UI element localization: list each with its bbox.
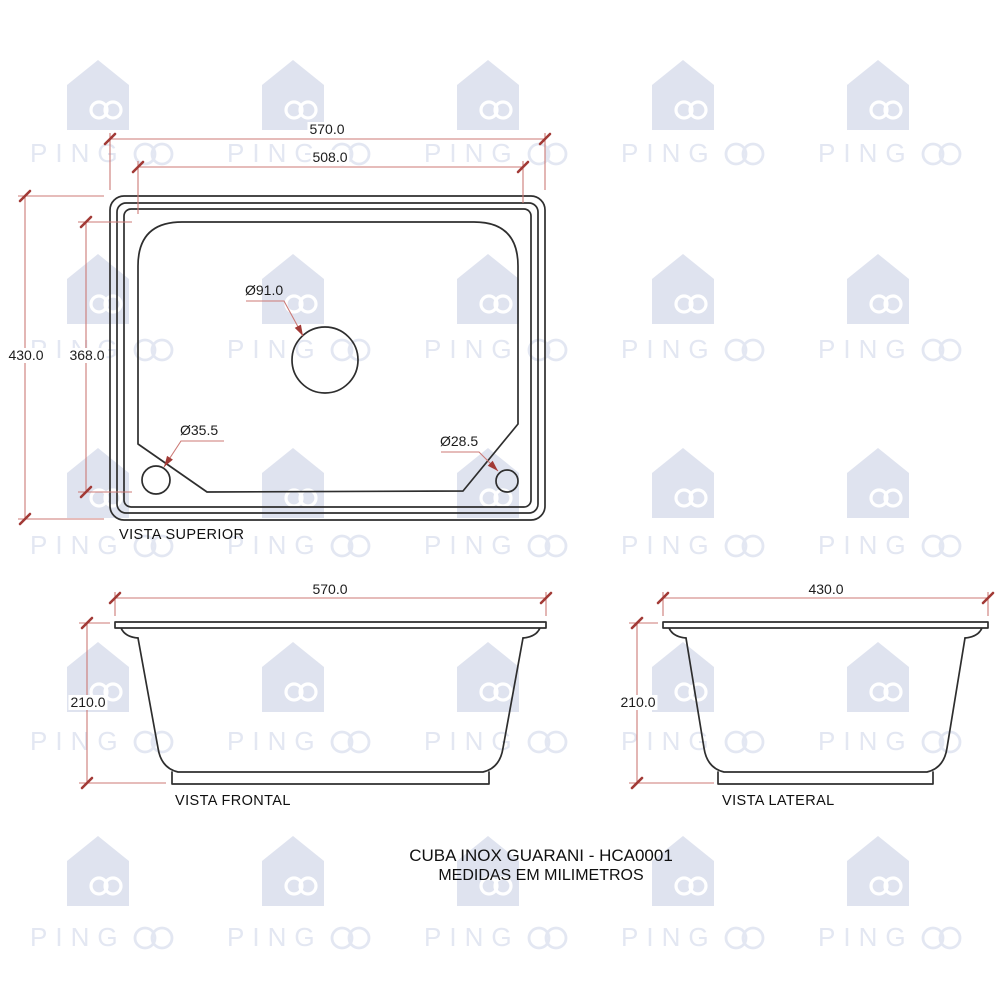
dimension-lines	[79, 592, 546, 783]
sink-inner-rim	[124, 209, 531, 507]
view-label-superior: VISTA SUPERIOR	[119, 528, 244, 543]
dim-label-front-height: 210.0	[68, 695, 107, 710]
top-view-outline	[110, 196, 545, 520]
dim-label-front-width: 570.0	[310, 582, 349, 597]
dim-label-top-height-outer: 430.0	[6, 348, 45, 363]
hole-bottom-left	[142, 466, 170, 494]
side-view-outline	[663, 622, 988, 784]
view-label-lateral: VISTA LATERAL	[722, 794, 835, 809]
dimension-ticks	[20, 134, 550, 524]
leader-arrows	[161, 325, 500, 474]
dimension-lines	[629, 592, 988, 783]
hole-label-bottom-left: Ø35.5	[180, 423, 218, 438]
hole-bottom-right	[496, 470, 518, 492]
dim-label-top-width-outer: 570.0	[307, 122, 346, 137]
sink-middle-rim	[117, 203, 538, 513]
front-foot	[172, 772, 489, 784]
hole-label-center: Ø91.0	[245, 283, 283, 298]
dimension-lines	[18, 133, 545, 519]
dim-label-side-width: 430.0	[806, 582, 845, 597]
side-flange	[663, 622, 988, 638]
dim-label-top-height-inner: 368.0	[67, 348, 106, 363]
dim-label-top-width-inner: 508.0	[310, 150, 349, 165]
technical-drawing-page: PING PING	[0, 0, 1000, 1000]
hole-label-bottom-right: Ø28.5	[440, 434, 478, 449]
side-body	[686, 638, 965, 772]
front-flange	[115, 622, 546, 638]
view-label-frontal: VISTA FRONTAL	[175, 794, 291, 809]
dim-label-side-height: 210.0	[618, 695, 657, 710]
drawing-subtitle: MEDIDAS EM MILIMETROS	[438, 868, 643, 883]
top-view-dimensions	[18, 133, 550, 524]
front-body	[138, 638, 523, 772]
front-view-outline	[115, 622, 546, 784]
drawing-title: CUBA INOX GUARANI - HCA0001	[409, 848, 673, 863]
drain-hole-center	[292, 327, 358, 393]
side-foot	[718, 772, 933, 784]
